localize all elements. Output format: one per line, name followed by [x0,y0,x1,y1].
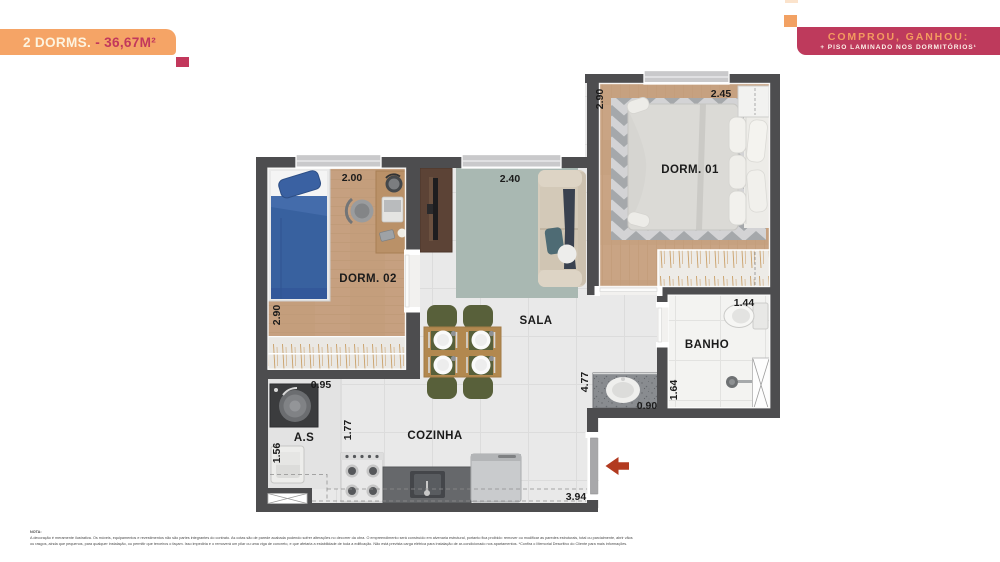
svg-text:4.77: 4.77 [579,372,591,393]
svg-text:1.44: 1.44 [734,297,755,309]
svg-text:2.45: 2.45 [711,88,732,100]
svg-text:2.40: 2.40 [500,173,521,185]
svg-text:COZINHA: COZINHA [407,430,462,442]
svg-text:DORM. 01: DORM. 01 [661,164,719,176]
svg-text:1.64: 1.64 [668,380,680,401]
svg-text:1.56: 1.56 [271,443,283,464]
svg-text:0.90: 0.90 [637,400,658,412]
svg-text:3.94: 3.94 [566,491,587,503]
svg-text:BANHO: BANHO [685,339,729,351]
svg-text:1.77: 1.77 [342,420,354,441]
svg-text:2.90: 2.90 [271,305,283,326]
svg-text:SALA: SALA [520,315,553,327]
svg-text:2.00: 2.00 [342,172,363,184]
svg-text:2.90: 2.90 [594,89,606,110]
svg-text:DORM. 02: DORM. 02 [339,273,397,285]
svg-text:A.S: A.S [294,432,314,444]
svg-text:0.95: 0.95 [311,379,332,391]
